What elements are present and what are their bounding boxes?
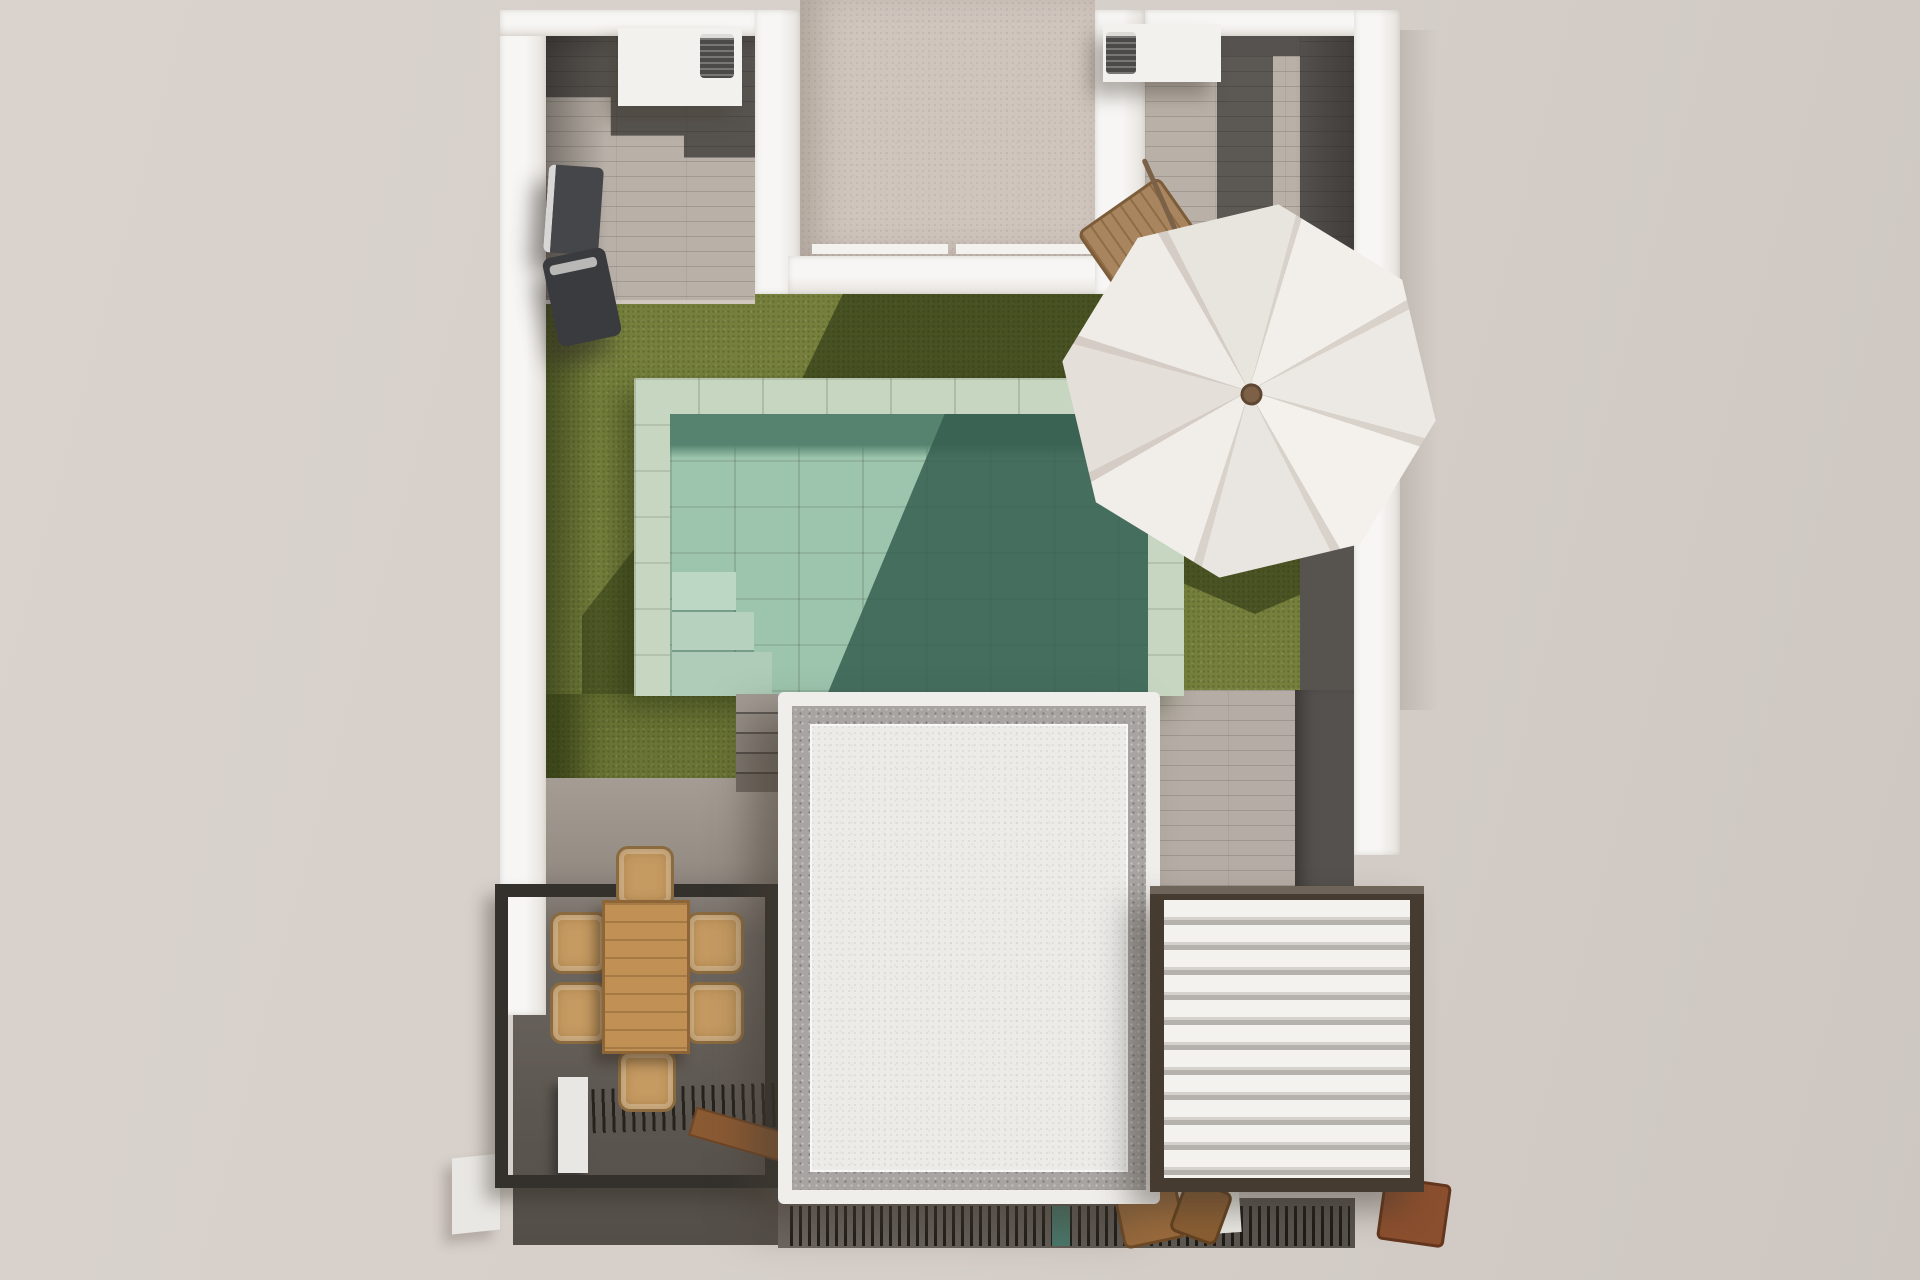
dining-chair	[550, 982, 608, 1044]
entrance-parapet-line-right	[956, 244, 1092, 254]
louver-slats	[1164, 900, 1410, 1178]
pool-steps	[670, 564, 790, 696]
parasol-hub-icon	[1239, 382, 1264, 407]
louver-frame-highlight	[1150, 886, 1424, 894]
dining-chair	[550, 912, 608, 974]
louvered-pergola	[1150, 886, 1424, 1192]
side-walkway	[1158, 690, 1295, 888]
dining-chair	[686, 912, 744, 974]
rear-slat-grill	[790, 1206, 1350, 1246]
dining-chair	[616, 846, 674, 908]
left-parapet	[755, 10, 800, 294]
side-walkway-dark-tiles	[1295, 690, 1354, 888]
roof-field	[810, 724, 1128, 1172]
roof-gravel-border	[792, 706, 1146, 1190]
entrance-roof	[800, 0, 1095, 264]
wall-shadow-on-lawn	[546, 294, 598, 694]
garden-steps	[736, 694, 782, 794]
dining-chair	[686, 982, 744, 1044]
ac-unit-right-icon	[1106, 32, 1136, 74]
teal-object	[1052, 1206, 1070, 1246]
entry-step	[452, 1153, 500, 1234]
ac-unit-left-icon	[700, 34, 734, 78]
west-wall	[500, 10, 546, 1015]
entrance-roof-cap	[788, 256, 1106, 294]
entrance-parapet-line-left	[812, 244, 948, 254]
main-roof	[778, 692, 1160, 1204]
dining-table	[602, 900, 690, 1054]
dining-chair	[618, 1050, 676, 1112]
pool-water	[670, 414, 1148, 696]
aerial-villa-render	[0, 0, 1920, 1280]
outdoor-sofa-back	[543, 164, 604, 256]
